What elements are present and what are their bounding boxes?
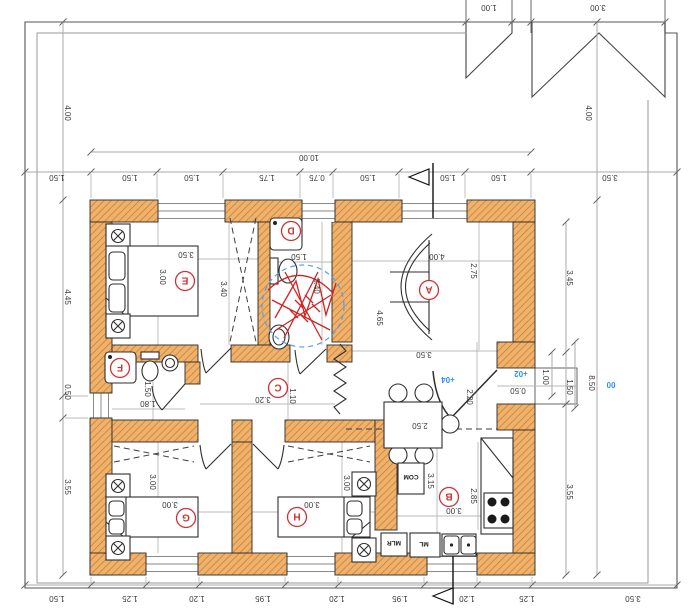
dim-right-chain-3: 3.55 [565,484,574,500]
dim-a-south: 3.50 [416,350,432,359]
dim-top-chain-0: 1.50 [49,173,65,182]
dim-top-chain-7: 1.50 [491,173,507,182]
pillow [109,252,125,280]
window-e [158,200,225,222]
sink-f [162,355,178,371]
dim-bottom-chain-6: 1.20 [459,594,475,603]
dim-e-closet: 3.40 [219,281,228,297]
dim-right-chain-2: 1.50 [565,379,574,395]
window-d [302,200,335,222]
room-letter-e: E [181,275,188,286]
dim-g-width: 3.00 [162,500,178,509]
wall-top-1 [90,200,158,222]
dim-bottom-chain-1: 1.25 [122,594,138,603]
floorplan-canvas: 1.00 3.00 4.00 4.00 10.00 1.50 1.50 1.50… [0,0,688,616]
window-a [402,200,467,222]
dim-overall-width: 10.00 [298,153,319,162]
chair [389,384,407,402]
floorplan-drawing: 1.00 3.00 4.00 4.00 10.00 1.50 1.50 1.50… [0,0,688,616]
dim-b-table: 2.50 [412,421,428,430]
dim-c-len: 3.20 [255,395,271,404]
dim-canopy-small: 1.00 [481,3,497,12]
room-letter-h: H [293,511,300,522]
room-letter-g: G [182,512,190,523]
burner-icon [488,515,497,524]
dim-h-depth: 3.00 [342,475,351,491]
dim-right-chain-0: 3.45 [565,270,574,286]
dim-e-width: 3.00 [158,269,167,285]
dim-bottom-chain-5: 1.95 [392,594,408,603]
wc-tank-f [141,352,159,359]
dim-top-chain-1: 1.50 [122,173,138,182]
dim-top-chain-6: 1.50 [440,173,456,182]
chair [415,384,433,402]
burner-icon [488,498,497,507]
dim-bottom-chain-3: 1.95 [255,594,271,603]
dim-top-chain-5: 1.50 [360,173,376,182]
dim-top-chain-4: 0.75 [309,173,325,182]
dim-d-depth: 3.40 [312,278,321,294]
burner-icon [501,498,510,507]
dim-left-chain-2: 3.55 [63,479,72,495]
wall-under-d [327,345,352,362]
dim-canopy-large: 3.00 [590,3,606,12]
wall-top-3 [335,200,402,222]
room-letter-f: F [117,362,123,373]
chair [441,415,459,433]
label-com: COM [403,473,418,480]
dim-bottom-chain-2: 1.20 [189,594,205,603]
dim-left-chain-0: 4.45 [63,289,72,305]
dim-bottom-chain-8: 3.50 [625,594,641,603]
dim-right-chain-1: 1.00 [541,369,550,385]
dim-e-north: 3.50 [178,250,194,259]
wall-d-a [332,222,352,342]
chair [389,446,407,464]
wall-top-4 [467,200,535,222]
shower-drain-icon [273,221,277,225]
burner-icon [501,515,510,524]
pillow [109,284,125,312]
window-g [146,553,198,575]
dim-a-depth: 2.75 [469,263,478,279]
room-letter-a: A [425,284,432,295]
dim-c-width: 1.10 [288,388,297,404]
large-gable-icon [532,22,665,97]
dim-bottom-chain-4: 1.20 [329,594,345,603]
dim-h-width: 3.00 [304,500,320,509]
wall-bottom-4 [477,553,535,575]
chair [415,446,433,464]
dim-a-width: 4.00 [429,252,445,261]
dim-right-outside: 4.00 [584,105,593,121]
wall-bottom-2 [198,553,287,575]
dim-f-width: 1.80 [140,399,156,408]
wall-hall-h [285,420,375,442]
roof-canopy-symbols [463,0,669,97]
section-triangle-bottom-icon [433,588,453,604]
level-entry-mid: +02 [514,369,528,378]
dim-bottom-chain-7: 1.25 [519,594,535,603]
dim-left-outside: 4.00 [63,105,72,121]
dim-left-chain-1: 0.50 [63,384,72,400]
dim-top-chain-3: 1.75 [259,173,275,182]
wc-bowl-f [142,361,158,381]
room-letter-d: D [287,225,294,236]
pillow [347,501,362,516]
level-entry-up: +04 [441,375,455,384]
pillow [347,519,362,534]
dim-entry-door: 2.20 [465,389,474,405]
wall-e-d [258,222,270,345]
dim-b-len2: 2.85 [469,488,478,504]
label-mlr: MLR [387,539,401,546]
dim-b-width: 3.00 [446,506,462,515]
room-letter-c: C [274,382,281,393]
wall-entry-upper [497,342,535,368]
small-gable-icon [466,22,512,78]
shower-drain-icon [108,355,112,359]
dim-top-chain-2: 1.50 [184,173,200,182]
wall-g-h [232,442,252,553]
stove [484,493,513,528]
wall-right-upper [513,222,535,342]
pillow [109,501,124,516]
dim-g-depth: 3.00 [148,474,157,490]
dim-top-chain-8: 3.50 [602,173,618,182]
dim-right-overall: 8.50 [587,375,596,391]
wall-hall-pier [232,420,252,442]
dim-entry-step: 0.50 [510,386,526,395]
window-h [287,553,335,575]
dim-d-width: 1.50 [291,252,307,261]
window-left-f [90,393,112,418]
dim-bottom-chain-0: 1.50 [49,594,65,603]
dim-a-sofa: 4.65 [375,310,384,326]
wall-hall-g [112,420,198,442]
wall-right-lower [513,430,535,553]
room-letter-b: B [445,491,452,502]
pillow [109,519,124,534]
label-ml: ML [419,540,428,547]
wall-entry-lower [497,404,535,430]
dim-b-len1: 3.15 [426,473,435,489]
wall-f-hall [185,362,200,384]
level-zero-label: 00 [606,380,615,389]
section-triangle-top-icon [409,169,429,185]
dim-f-depth: 1.50 [143,381,152,397]
